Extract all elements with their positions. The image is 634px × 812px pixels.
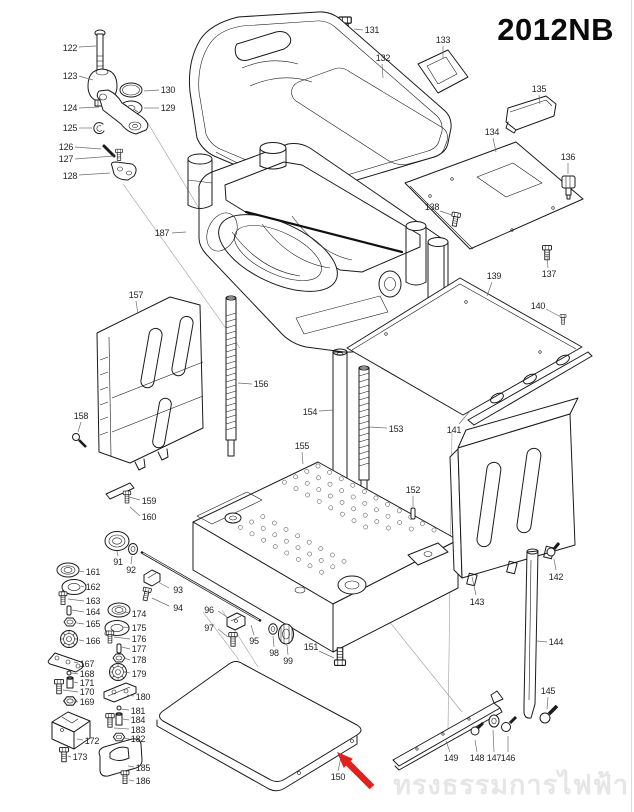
part-143-housing [450, 398, 578, 586]
part-92-ring [129, 544, 138, 555]
leader-line-140 [546, 309, 559, 316]
leader-line-126 [75, 147, 101, 149]
part-label-153: 153 [389, 424, 404, 434]
part-153-threaded-rod [359, 366, 369, 498]
part-label-140: 140 [531, 301, 546, 311]
part-label-178: 178 [132, 655, 147, 665]
part-label-177: 177 [132, 644, 147, 654]
exploded-view-drawing: 1221231301291241251261271281311321331351… [0, 0, 634, 812]
part-180-plate [104, 683, 136, 702]
part-163-screw [59, 592, 67, 605]
leader-line-186 [129, 780, 134, 781]
part-167-bracket [48, 653, 83, 672]
part-181-washer [117, 706, 121, 710]
leader-line-148 [475, 740, 477, 752]
part-label-95: 95 [249, 636, 259, 646]
leader-line-178 [124, 658, 130, 660]
leader-line-122 [79, 46, 96, 47]
part-176-screw [106, 631, 114, 643]
part-130-o-ring [120, 83, 142, 97]
part-152-pin [411, 508, 415, 519]
leader-line-128 [79, 173, 110, 175]
part-label-122: 122 [63, 43, 78, 53]
part-label-92: 92 [126, 565, 136, 575]
part-label-174: 174 [132, 609, 147, 619]
part-label-180: 180 [136, 692, 151, 702]
leader-line-184 [123, 719, 129, 720]
part-label-91: 91 [113, 557, 123, 567]
part-label-128: 128 [63, 171, 78, 181]
leader-line-181 [121, 709, 129, 710]
part-label-93: 93 [173, 585, 183, 595]
leader-line-170 [63, 690, 78, 692]
part-label-157: 157 [129, 290, 144, 300]
part-147-ring [489, 715, 499, 727]
part-label-96: 96 [204, 605, 214, 615]
part-label-130: 130 [161, 85, 176, 95]
part-label-163: 163 [86, 596, 101, 606]
part-98-ring [269, 624, 278, 634]
part-164-pin [67, 606, 71, 615]
part-127-screw [116, 149, 123, 160]
part-179-gear [110, 664, 127, 681]
part-99-knurled-wheel [279, 624, 294, 644]
part-170-screw [55, 679, 64, 693]
part-label-164: 164 [86, 607, 101, 617]
leader-line-99 [287, 645, 288, 655]
part-label-154: 154 [303, 407, 318, 417]
part-label-99: 99 [283, 656, 293, 666]
part-94-screw [141, 587, 151, 601]
leader-line-131 [354, 29, 363, 30]
part-label-182: 182 [131, 734, 146, 744]
part-label-185: 185 [136, 763, 151, 773]
leader-line-127 [75, 156, 114, 159]
part-186-screw [121, 771, 129, 784]
leader-line-187 [172, 232, 186, 233]
part-157-fence [97, 297, 203, 470]
part-label-179: 179 [132, 669, 147, 679]
leader-line-182 [124, 738, 129, 739]
leader-line-91 [117, 551, 118, 556]
leader-line-144 [537, 641, 547, 642]
watermark-text: ทรงธรรมการไฟฟ้า [393, 763, 629, 806]
part-156-threaded-rod [226, 296, 236, 456]
part-label-161: 161 [86, 567, 101, 577]
part-label-97: 97 [204, 623, 214, 633]
part-label-94: 94 [173, 603, 183, 613]
part-label-159: 159 [142, 496, 157, 506]
part-label-166: 166 [86, 636, 101, 646]
page-edge [631, 0, 632, 812]
part-label-127: 127 [59, 154, 74, 164]
part-label-158: 158 [74, 411, 89, 421]
leader-line-96 [218, 611, 227, 617]
part-label-170: 170 [80, 687, 95, 697]
leader-line-163 [68, 599, 84, 601]
leader-line-158 [78, 422, 81, 432]
part-label-132: 132 [376, 53, 391, 63]
part-183-screw [106, 714, 115, 728]
part-label-152: 152 [406, 485, 421, 495]
part-161-bearing [57, 563, 79, 577]
part-144-bar [524, 549, 538, 718]
leader-line-166 [79, 640, 84, 641]
part-128-bracket [112, 162, 137, 180]
leader-line-168 [72, 673, 78, 674]
part-label-160: 160 [142, 512, 157, 522]
part-label-125: 125 [63, 123, 78, 133]
part-label-175: 175 [132, 623, 147, 633]
part-label-173: 173 [73, 752, 88, 762]
part-125-e-ring [94, 123, 104, 134]
part-182-nut [113, 733, 124, 741]
leader-line-173 [68, 756, 71, 757]
part-label-139: 139 [487, 271, 502, 281]
part-label-136: 136 [561, 152, 576, 162]
leader-line-139 [487, 282, 492, 296]
leader-line-97 [218, 629, 228, 637]
part-label-144: 144 [549, 637, 564, 647]
part-label-151: 151 [304, 642, 319, 652]
part-label-172: 172 [85, 736, 100, 746]
part-122-bolt [95, 30, 105, 72]
part-label-147: 147 [487, 753, 502, 763]
part-label-149: 149 [444, 753, 459, 763]
leader-line-183 [114, 728, 129, 729]
leader-line-93 [158, 582, 169, 588]
part-label-186: 186 [136, 776, 151, 786]
leader-line-124 [79, 107, 99, 108]
part-166-gear [61, 631, 78, 648]
part-label-167: 167 [80, 659, 95, 669]
part-148-screw [471, 723, 483, 735]
leader-line-161 [79, 571, 84, 572]
leader-line-171 [74, 682, 78, 683]
part-label-156: 156 [254, 379, 269, 389]
parts-diagram-page: 1221231301291241251261271281311321331351… [0, 0, 634, 812]
part-158-screw [73, 434, 87, 448]
part-label-138: 138 [425, 202, 440, 212]
leader-line-177 [122, 647, 130, 649]
part-label-176: 176 [132, 634, 147, 644]
leader-line-160 [130, 507, 140, 516]
part-91-pulley [105, 532, 129, 551]
part-165-nut [64, 618, 76, 626]
leader-line-151 [319, 651, 334, 658]
leader-line-143 [472, 577, 476, 595]
part-96-clevis [227, 613, 245, 630]
leader-line-95 [251, 625, 254, 635]
leader-line-130 [144, 90, 159, 91]
part-label-124: 124 [63, 103, 78, 113]
part-178-nut [113, 654, 125, 662]
part-174-bearing [108, 603, 130, 617]
part-135-handle [506, 96, 556, 133]
leader-line-156 [238, 383, 252, 384]
part-label-133: 133 [436, 35, 451, 45]
model-title: 2012NB [497, 12, 614, 48]
part-label-162: 162 [86, 582, 101, 592]
part-label-141: 141 [447, 425, 462, 435]
leader-line-92 [131, 556, 132, 564]
part-label-187: 187 [155, 228, 170, 238]
part-label-134: 134 [485, 127, 500, 137]
part-label-126: 126 [59, 142, 74, 152]
part-label-98: 98 [269, 648, 279, 658]
part-label-135: 135 [532, 84, 547, 94]
part-168-washer [67, 671, 71, 675]
part-label-184: 184 [131, 715, 146, 725]
part-97-screw [229, 633, 238, 647]
part-184-sleeve [116, 713, 122, 725]
part-label-150: 150 [331, 772, 346, 782]
part-145-screw [540, 706, 557, 723]
leader-line-176 [114, 637, 130, 639]
leader-line-153 [369, 427, 387, 428]
part-126-pin [104, 146, 114, 156]
part-label-143: 143 [470, 597, 485, 607]
leader-line-164 [72, 610, 84, 612]
part-154-column [333, 349, 347, 489]
part-146-screw [502, 717, 517, 732]
leader-line-159 [129, 497, 140, 500]
part-177-pin [117, 644, 121, 653]
leader-line-157 [136, 301, 138, 314]
part-label-146: 146 [501, 753, 516, 763]
leader-line-165 [77, 623, 84, 624]
part-label-165: 165 [86, 619, 101, 629]
part-171-sleeve [67, 677, 73, 688]
part-label-131: 131 [365, 25, 380, 35]
leader-line-155 [302, 452, 303, 464]
leader-line-98 [273, 636, 274, 647]
leader-line-94 [152, 598, 169, 606]
part-label-123: 123 [63, 71, 78, 81]
part-93-clamp [144, 570, 160, 586]
part-label-137: 137 [542, 269, 557, 279]
part-label-148: 148 [470, 753, 485, 763]
leader-line-147 [493, 730, 494, 752]
part-140-screw [560, 315, 566, 325]
leader-line-145 [547, 697, 548, 709]
part-label-169: 169 [80, 697, 95, 707]
part-label-155: 155 [295, 441, 310, 451]
leader-line-142 [554, 559, 556, 570]
part-173-screw [60, 747, 69, 761]
part-label-145: 145 [541, 686, 556, 696]
leader-line-154 [319, 410, 333, 411]
part-label-129: 129 [161, 103, 176, 113]
part-label-142: 142 [549, 572, 564, 582]
